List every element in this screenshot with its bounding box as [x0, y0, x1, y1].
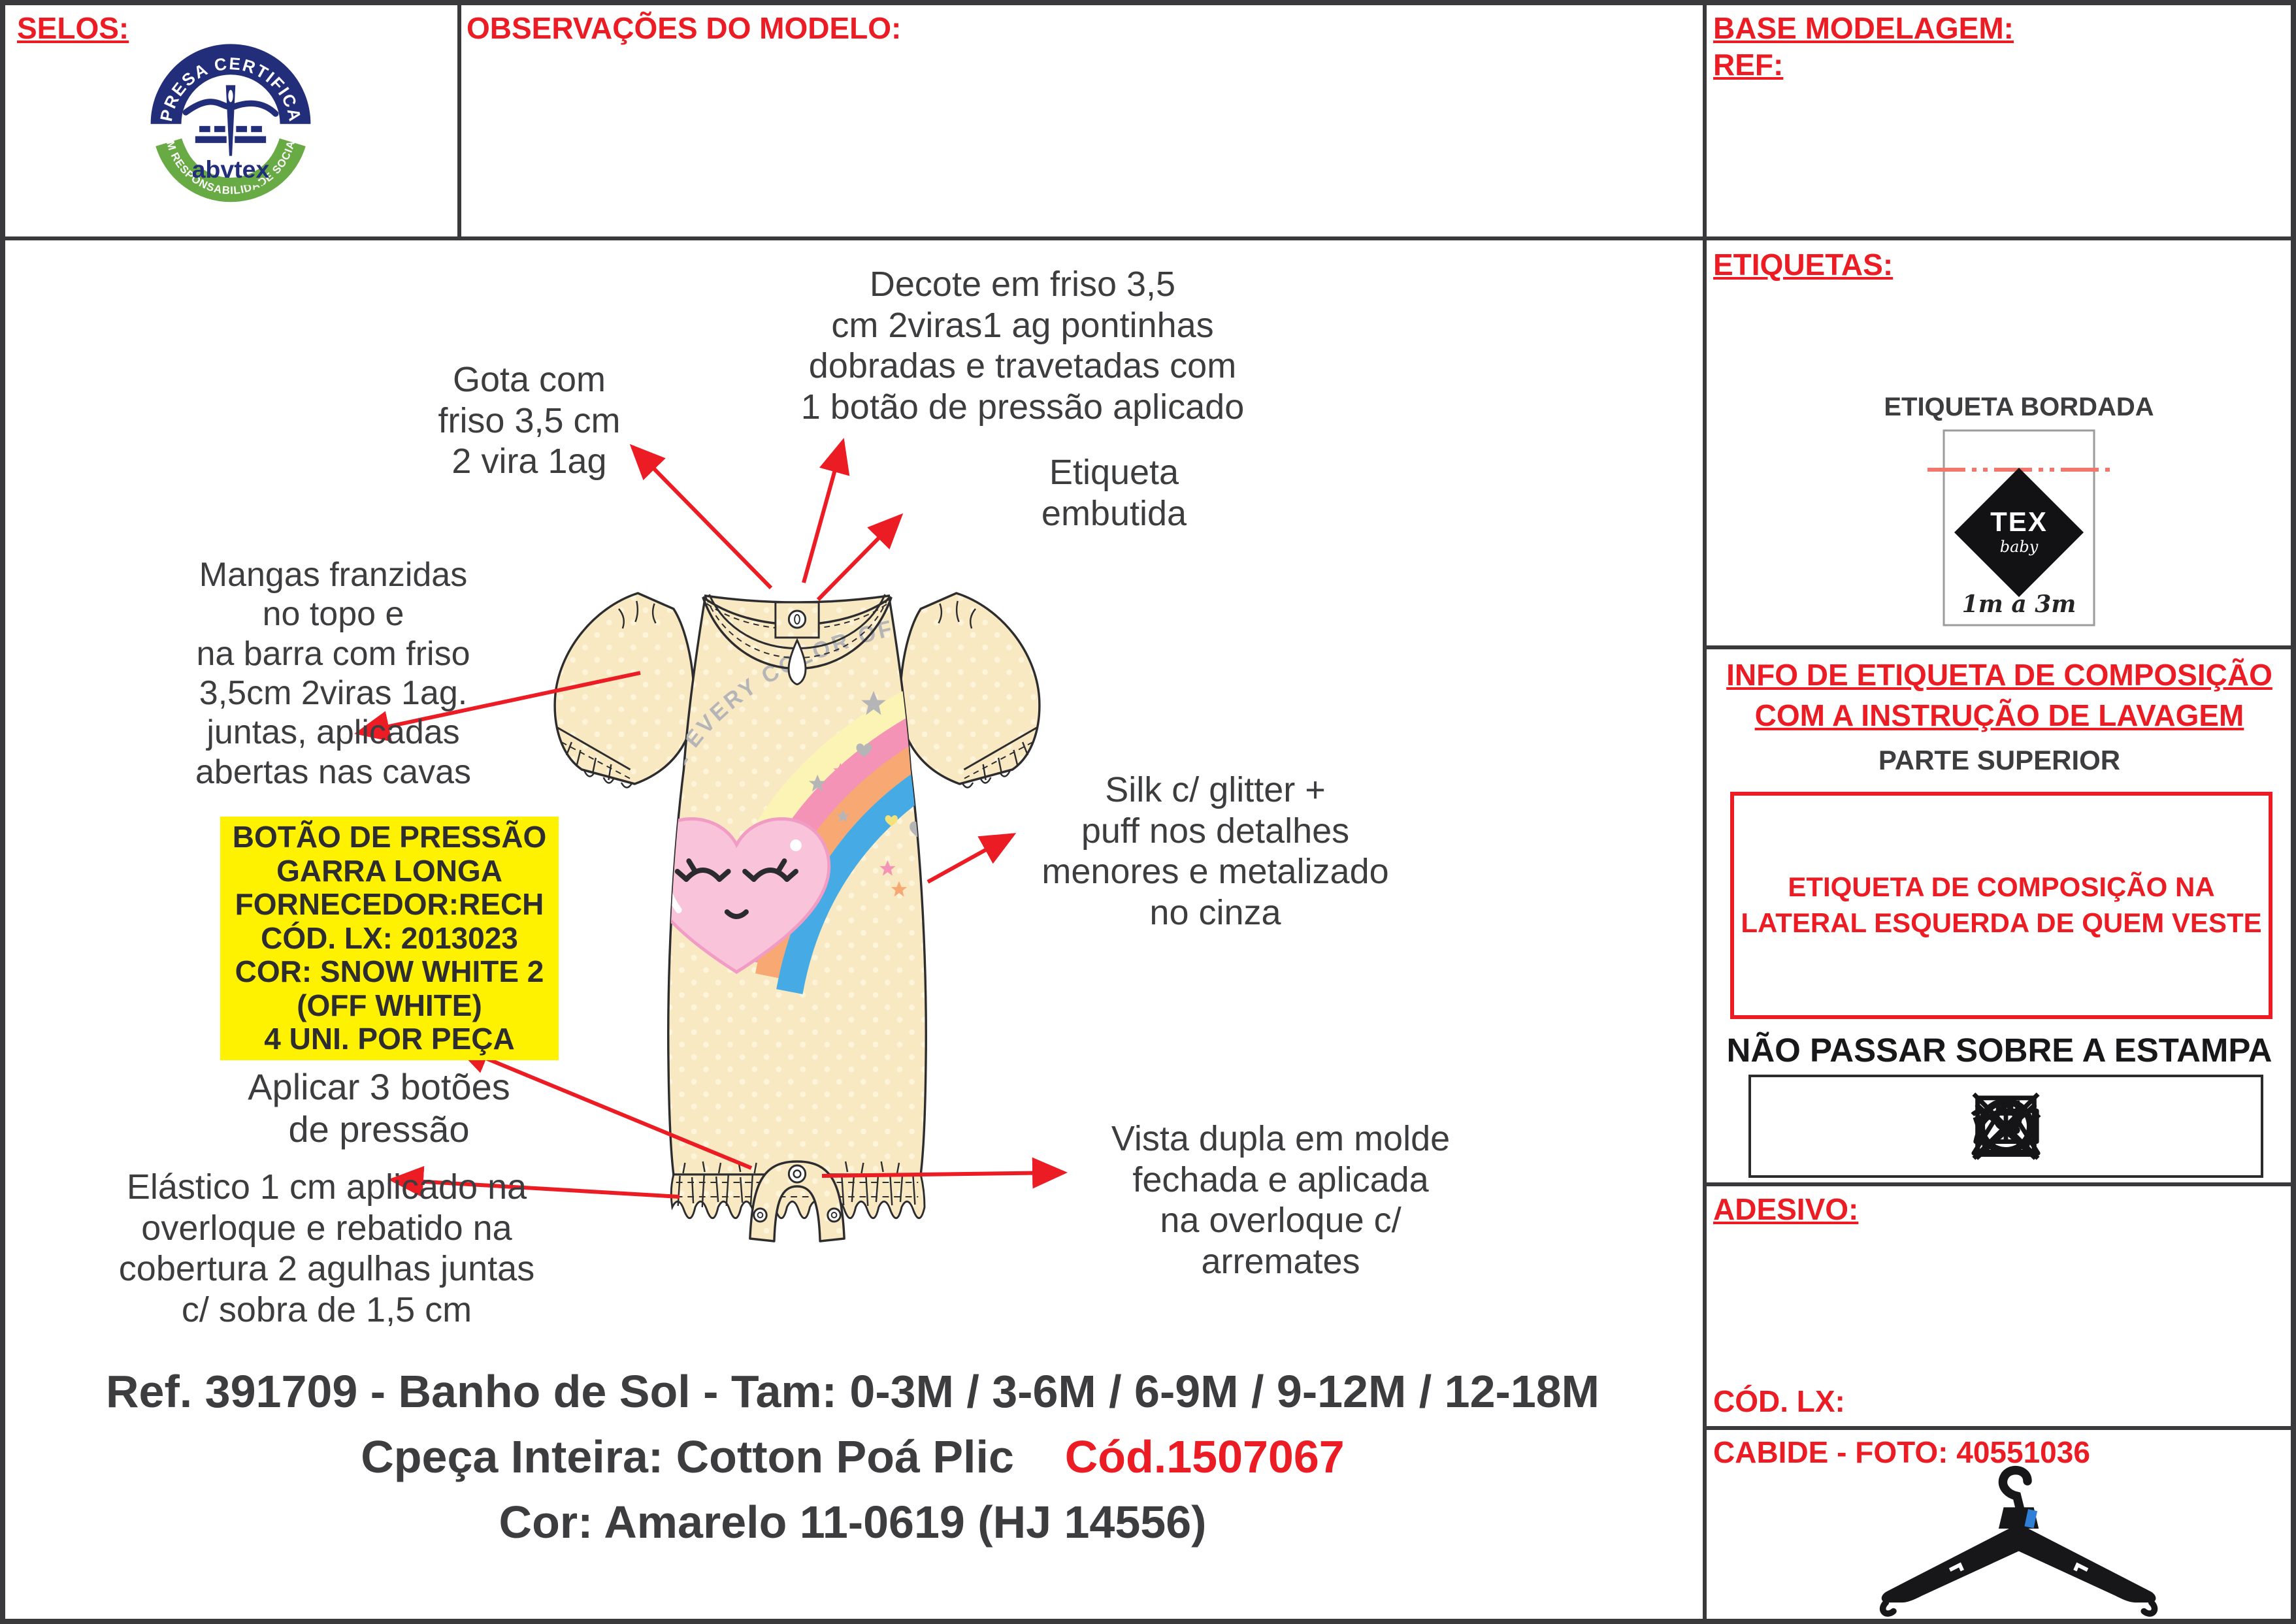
- spec-sheet: SELOS: OBSERVAÇÕES DO MODELO: BASE MODEL…: [0, 0, 2296, 1624]
- info-composicao-title-1: INFO DE ETIQUETA DE COMPOSIÇÃO: [1712, 657, 2287, 692]
- ref-label: REF:: [1713, 47, 1783, 82]
- annotation-gota: Gota com friso 3,5 cm 2 vira 1ag: [418, 359, 640, 482]
- annotation-etiqueta-embutida: Etiqueta embutida: [1006, 452, 1222, 534]
- garment-drawing: LOVE EVERY COLOR OF THE RAINBOW: [542, 554, 1052, 1246]
- composicao-note-box: ETIQUETA DE COMPOSIÇÃO NA LATERAL ESQUER…: [1730, 792, 2272, 1019]
- annotation-vista: Vista dupla em molde fechada e aplicada …: [1072, 1118, 1490, 1282]
- info-composicao-title-2: COM A INSTRUÇÃO DE LAVAGEM: [1712, 698, 2287, 733]
- parte-superior-label: PARTE SUPERIOR: [1712, 745, 2287, 777]
- adesivo-title: ADESIVO:: [1713, 1192, 1858, 1227]
- annotation-mangas: Mangas franzidas no topo e na barra com …: [105, 555, 562, 792]
- fabric-line: Cpeça Inteira: Cotton Poá Plic Cód.15070…: [20, 1431, 1686, 1483]
- divider: [1707, 1426, 2291, 1430]
- divider: [5, 236, 1707, 240]
- observacoes-title: OBSERVAÇÕES DO MODELO:: [467, 10, 901, 46]
- cod-lx-label: CÓD. LX:: [1713, 1384, 1845, 1419]
- etiquetas-title: ETIQUETAS:: [1713, 247, 1893, 282]
- svg-text:1m a 3m: 1m a 3m: [1962, 591, 2076, 618]
- nao-passar-warning: NÃO PASSAR SOBRE A ESTAMPA: [1712, 1031, 2287, 1069]
- base-modelagem-title: BASE MODELAGEM:: [1713, 10, 2014, 46]
- svg-text:baby: baby: [2000, 538, 2039, 556]
- hanger-icon: [1856, 1469, 2169, 1619]
- svg-text:TEX: TEX: [1990, 506, 2048, 537]
- divider: [1707, 1182, 2291, 1186]
- cabide-title: CABIDE - FOTO: 40551036: [1713, 1435, 2090, 1470]
- composicao-note-line: ETIQUETA DE COMPOSIÇÃO NA: [1741, 869, 2261, 905]
- divider: [457, 5, 461, 236]
- tex-baby-label: TEX baby 1m a 3m: [1927, 428, 2110, 630]
- etiqueta-bordada-label: ETIQUETA BORDADA: [1823, 392, 2215, 422]
- fabric-text: Cpeça Inteira: Cotton Poá Plic: [361, 1431, 1014, 1482]
- abvtex-logo-icon: EMPRESA CERTIFICADA EM RESPONSABILIDADE …: [149, 47, 312, 210]
- fabric-code: Cód.1507067: [1065, 1431, 1345, 1482]
- divider: [1707, 645, 2291, 649]
- annotation-botao-pressao: BOTÃO DE PRESSÃO GARRA LONGA FORNECEDOR:…: [220, 817, 559, 1060]
- selos-title: SELOS:: [17, 10, 129, 46]
- composicao-note-line: LATERAL ESQUERDA DE QUEM VESTE: [1741, 905, 2261, 941]
- annotation-silk: Silk c/ glitter + puff nos detalhes meno…: [1019, 770, 1411, 934]
- divider: [1703, 5, 1707, 1619]
- color-line: Cor: Amarelo 11-0619 (HJ 14556): [20, 1496, 1686, 1548]
- care-symbols-box: [1748, 1075, 2263, 1178]
- annotation-elastico: Elástico 1 cm aplicado na overloque e re…: [85, 1167, 568, 1331]
- annotation-aplicar: Aplicar 3 botões de pressão: [196, 1066, 562, 1151]
- ref-line: Ref. 391709 - Banho de Sol - Tam: 0-3M /…: [20, 1365, 1686, 1418]
- annotation-decote: Decote em friso 3,5 cm 2viras1 ag pontin…: [761, 264, 1284, 428]
- divider: [1707, 236, 2291, 240]
- care-icon-do-not-dry-clean: [1967, 1088, 2044, 1165]
- svg-text:abvtex: abvtex: [192, 155, 270, 183]
